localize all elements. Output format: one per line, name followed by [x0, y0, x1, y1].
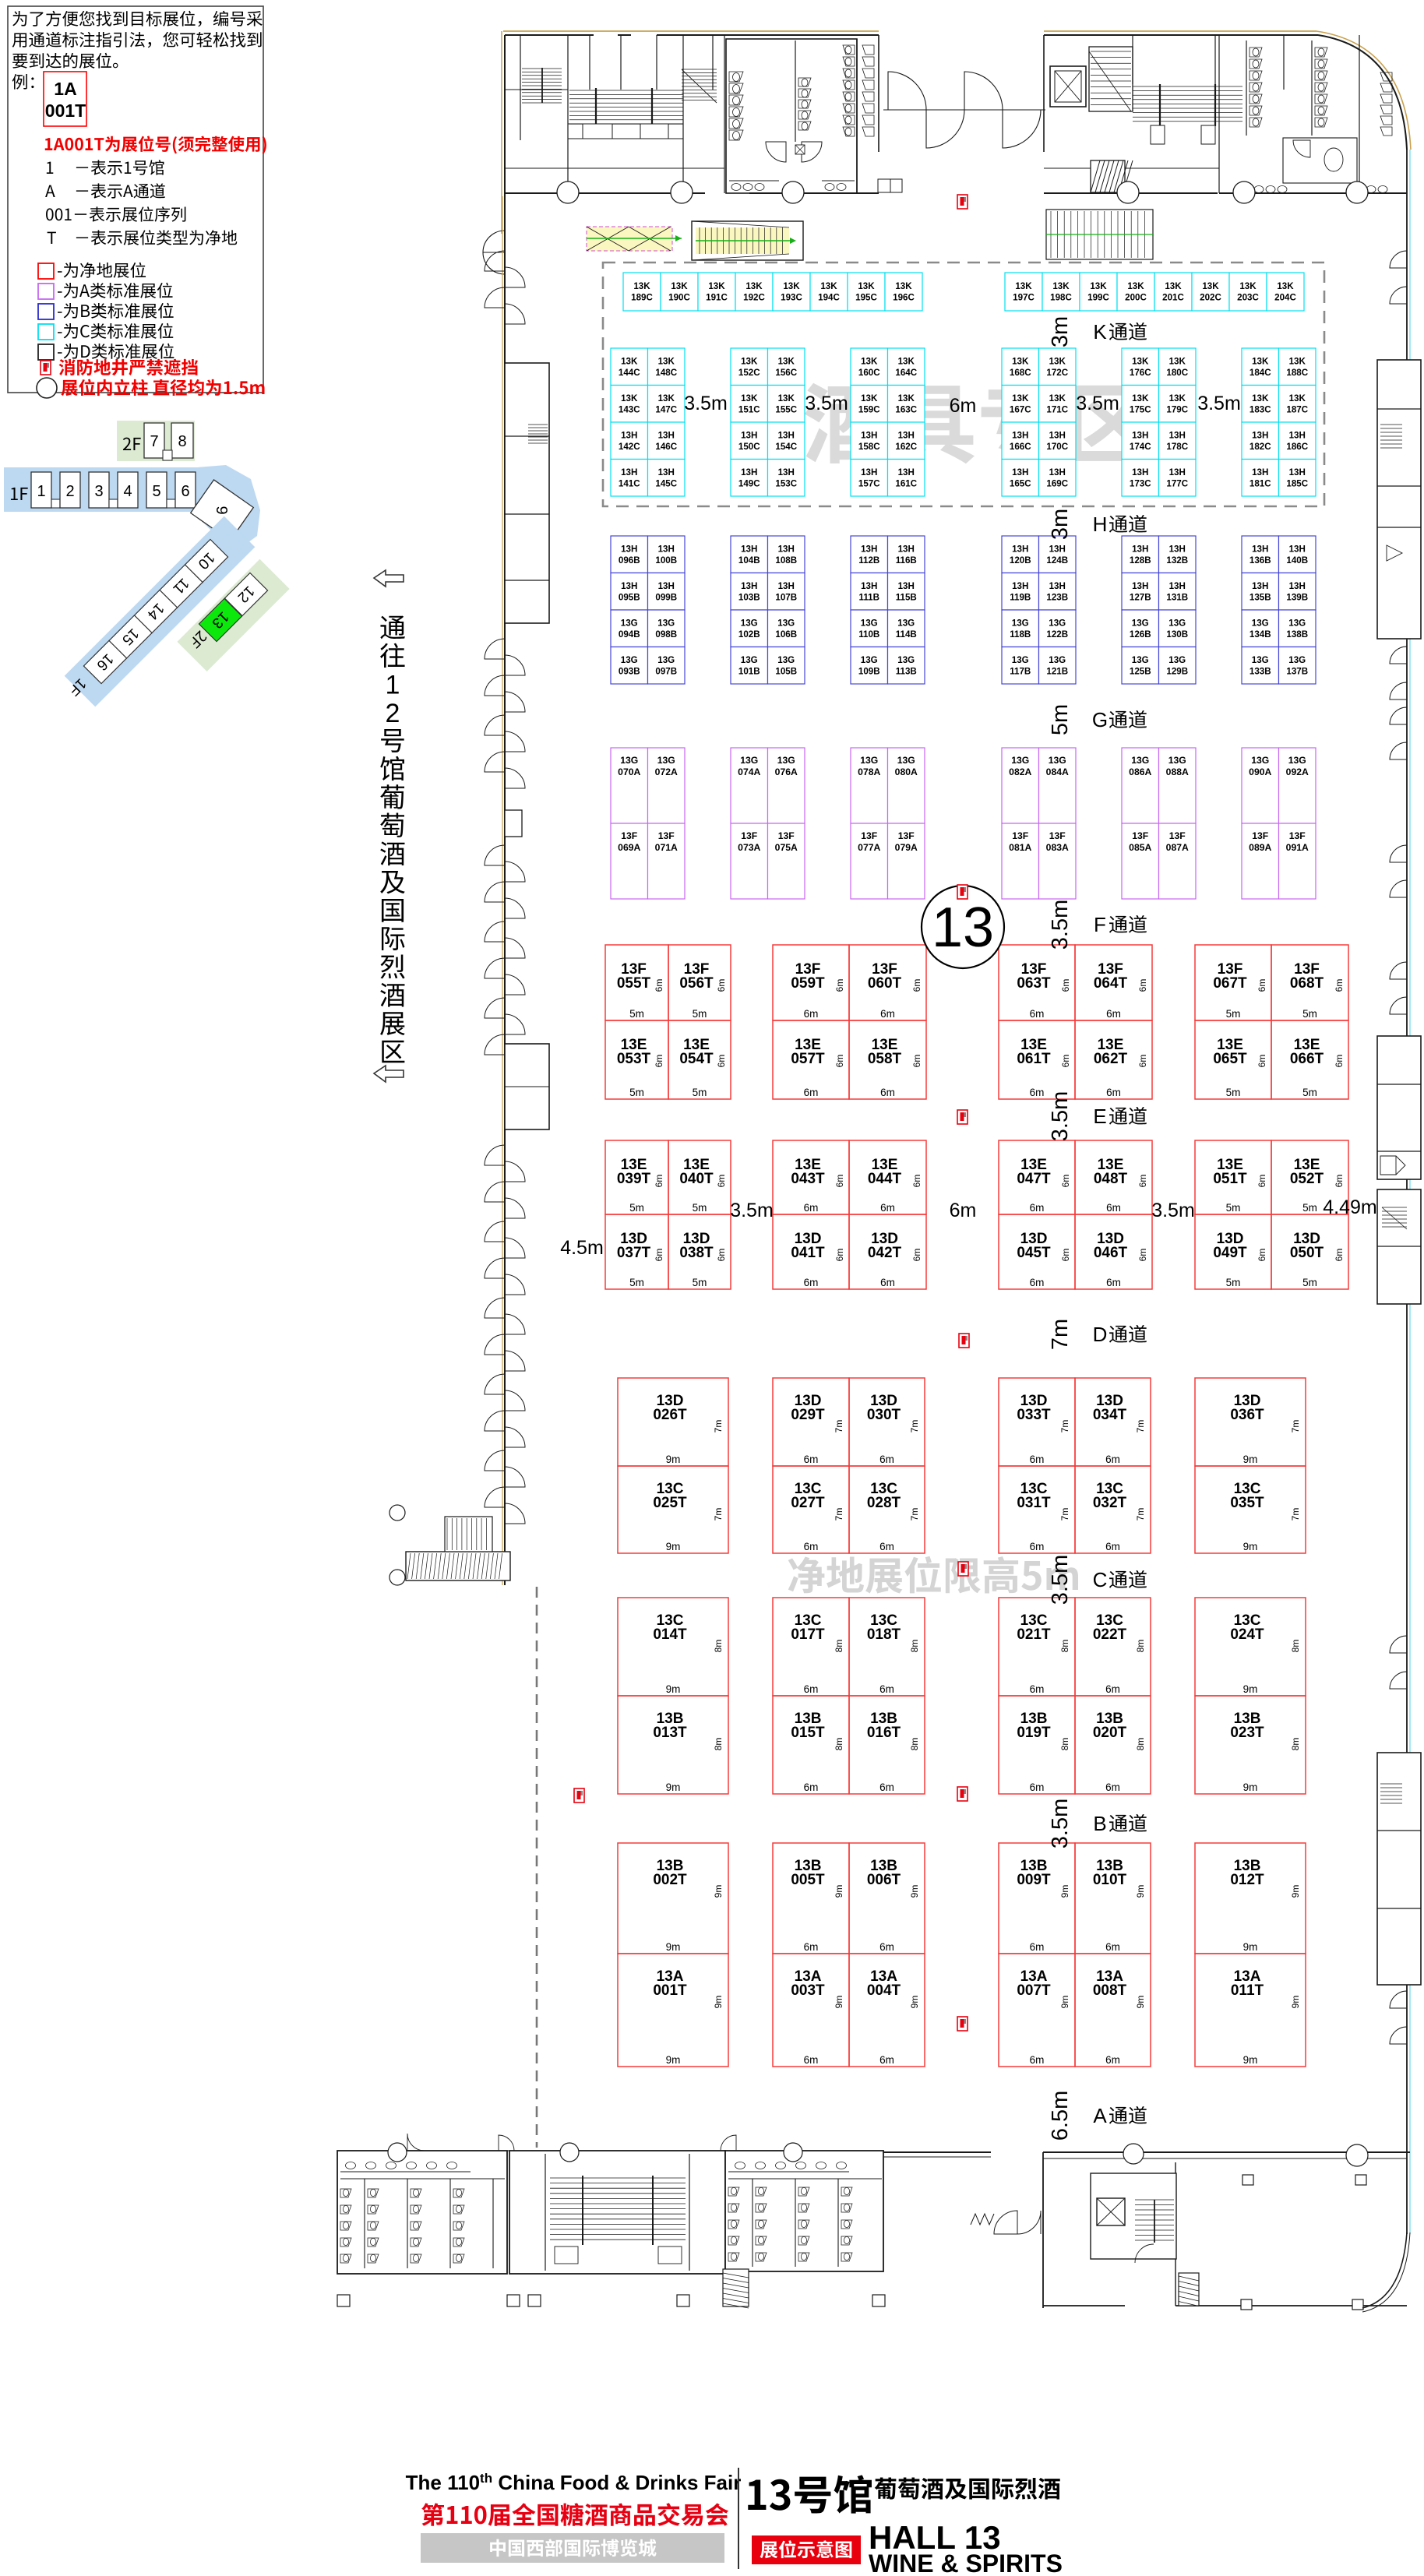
svg-text:13G: 13G	[897, 755, 915, 766]
svg-text:13K: 13K	[621, 356, 638, 366]
svg-text:13H: 13H	[1252, 581, 1268, 591]
svg-text:5m: 5m	[1226, 1202, 1241, 1214]
svg-text:137B: 137B	[1286, 666, 1308, 676]
svg-text:7: 7	[150, 433, 158, 450]
svg-text:192C: 192C	[743, 293, 765, 303]
svg-text:6m: 6m	[804, 1683, 819, 1695]
svg-text:099B: 099B	[655, 592, 677, 602]
svg-text:13H: 13H	[778, 544, 795, 554]
svg-text:5m: 5m	[693, 1087, 707, 1098]
svg-text:6m: 6m	[1257, 1175, 1267, 1188]
svg-text:066T: 066T	[1290, 1051, 1324, 1067]
svg-text:4.5m: 4.5m	[560, 1237, 604, 1259]
svg-text:13H: 13H	[1289, 544, 1306, 554]
svg-text:002T: 002T	[653, 1872, 687, 1888]
svg-text:13G: 13G	[861, 655, 878, 665]
svg-text:024T: 024T	[1230, 1626, 1264, 1643]
svg-text:191C: 191C	[706, 293, 728, 303]
svg-text:9m: 9m	[1243, 1454, 1258, 1465]
svg-text:13H: 13H	[861, 430, 877, 440]
svg-text:13H: 13H	[898, 430, 915, 440]
svg-text:13F: 13F	[1132, 830, 1148, 841]
svg-text:9m: 9m	[666, 1941, 681, 1953]
svg-text:009T: 009T	[1017, 1872, 1051, 1888]
svg-text:13H: 13H	[1289, 467, 1306, 477]
svg-text:13G: 13G	[657, 655, 675, 665]
svg-text:5m: 5m	[693, 1277, 707, 1288]
svg-text:6m: 6m	[950, 395, 977, 417]
svg-text:13H: 13H	[1012, 430, 1028, 440]
svg-text:13K: 13K	[820, 281, 837, 291]
svg-text:9m: 9m	[666, 2054, 681, 2066]
svg-text:6m: 6m	[1334, 979, 1345, 992]
svg-text:13H: 13H	[1132, 544, 1148, 554]
svg-text:042T: 042T	[868, 1245, 902, 1261]
svg-text:13H: 13H	[1012, 467, 1028, 477]
svg-text:027T: 027T	[791, 1495, 825, 1511]
svg-text:036T: 036T	[1230, 1407, 1264, 1423]
svg-text:196C: 196C	[893, 293, 915, 303]
svg-text:126B: 126B	[1130, 629, 1151, 640]
svg-text:13K: 13K	[708, 281, 725, 291]
svg-text:6: 6	[181, 483, 189, 500]
svg-text:13H: 13H	[1132, 581, 1148, 591]
svg-text:5: 5	[152, 483, 160, 500]
svg-text:031T: 031T	[1017, 1495, 1051, 1511]
svg-text:008T: 008T	[1093, 1982, 1127, 1999]
svg-text:023T: 023T	[1230, 1725, 1264, 1741]
svg-text:148C: 148C	[655, 368, 677, 378]
svg-text:13H: 13H	[898, 581, 915, 591]
svg-text:5m: 5m	[1302, 1202, 1317, 1214]
svg-text:7m: 7m	[834, 1420, 844, 1433]
svg-text:8m: 8m	[909, 1738, 920, 1751]
svg-text:035T: 035T	[1230, 1495, 1264, 1511]
svg-text:141C: 141C	[619, 478, 640, 488]
svg-text:084A: 084A	[1046, 766, 1069, 777]
svg-text:6m: 6m	[1334, 1175, 1345, 1188]
svg-text:8m: 8m	[1059, 1640, 1070, 1653]
svg-text:6m: 6m	[834, 1055, 845, 1068]
svg-text:13K: 13K	[1127, 281, 1144, 291]
svg-text:132B: 132B	[1166, 555, 1188, 566]
svg-text:9m: 9m	[713, 1885, 724, 1898]
svg-text:060T: 060T	[868, 975, 902, 992]
svg-text:136B: 136B	[1250, 555, 1271, 566]
svg-text:085A: 085A	[1129, 842, 1151, 853]
svg-text:C: C	[1093, 1568, 1108, 1591]
svg-text:6m: 6m	[879, 1454, 894, 1465]
svg-text:198C: 198C	[1050, 293, 1072, 303]
svg-text:13H: 13H	[1049, 467, 1066, 477]
svg-text:8m: 8m	[834, 1738, 844, 1751]
svg-text:13G: 13G	[897, 618, 915, 628]
svg-text:4.49m: 4.49m	[1323, 1196, 1376, 1218]
svg-text:13H: 13H	[1012, 544, 1028, 554]
svg-text:13K: 13K	[741, 356, 758, 366]
svg-text:203C: 203C	[1237, 293, 1259, 303]
svg-text:204C: 204C	[1274, 293, 1296, 303]
svg-text:13F: 13F	[778, 830, 795, 841]
svg-text:094B: 094B	[619, 629, 640, 640]
svg-text:6m: 6m	[911, 979, 922, 992]
svg-text:6m: 6m	[654, 979, 664, 992]
svg-text:6m: 6m	[1105, 1941, 1120, 1953]
svg-text:13H: 13H	[741, 581, 757, 591]
svg-text:135B: 135B	[1250, 592, 1271, 602]
svg-text:029T: 029T	[791, 1407, 825, 1423]
svg-text:057T: 057T	[791, 1051, 825, 1067]
svg-text:6m: 6m	[1106, 1202, 1121, 1214]
svg-text:3m: 3m	[1048, 316, 1073, 347]
svg-text:13K: 13K	[898, 356, 915, 366]
svg-text:13K: 13K	[861, 356, 878, 366]
svg-text:13H: 13H	[1012, 581, 1028, 591]
svg-text:040T: 040T	[679, 1171, 714, 1187]
svg-text:9m: 9m	[666, 1683, 681, 1695]
svg-text:13H: 13H	[658, 544, 675, 554]
svg-text:13K: 13K	[1012, 356, 1029, 366]
svg-text:13H: 13H	[861, 467, 877, 477]
svg-text:9m: 9m	[1135, 1996, 1146, 2009]
svg-text:178C: 178C	[1166, 442, 1188, 452]
svg-text:7m: 7m	[1290, 1420, 1301, 1433]
svg-text:13F: 13F	[741, 830, 757, 841]
svg-text:9m: 9m	[834, 1885, 844, 1898]
svg-text:The 110th China Food & Drinks: The 110th China Food & Drinks Fair	[406, 2471, 742, 2495]
svg-text:9m: 9m	[1290, 1996, 1301, 2009]
svg-text:6m: 6m	[879, 1781, 894, 1793]
svg-text:13G: 13G	[777, 618, 795, 628]
svg-text:3.5m: 3.5m	[1048, 900, 1073, 950]
svg-text:013T: 013T	[653, 1725, 687, 1741]
svg-text:5m: 5m	[1302, 1008, 1317, 1020]
svg-text:7m: 7m	[1135, 1508, 1146, 1521]
svg-text:090A: 090A	[1249, 766, 1271, 777]
svg-text:13K: 13K	[741, 393, 758, 403]
svg-text:6m: 6m	[879, 2054, 894, 2066]
svg-text:13H: 13H	[658, 430, 675, 440]
svg-text:13H: 13H	[621, 467, 637, 477]
svg-text:041T: 041T	[791, 1245, 825, 1261]
svg-text:13K: 13K	[633, 281, 650, 291]
svg-text:086A: 086A	[1129, 766, 1151, 777]
svg-text:13G: 13G	[741, 655, 758, 665]
svg-text:127B: 127B	[1130, 592, 1151, 602]
svg-text:13G: 13G	[741, 618, 758, 628]
svg-text:098B: 098B	[655, 629, 677, 640]
svg-text:6m: 6m	[1137, 1249, 1148, 1262]
svg-text:13H: 13H	[778, 430, 795, 440]
svg-text:13H: 13H	[778, 581, 795, 591]
svg-text:012T: 012T	[1230, 1872, 1264, 1888]
svg-text:6m: 6m	[654, 1175, 664, 1188]
svg-text:104B: 104B	[738, 555, 760, 566]
svg-text:13G: 13G	[1252, 618, 1269, 628]
svg-text:H: H	[1093, 513, 1108, 536]
svg-text:095B: 095B	[619, 592, 640, 602]
svg-text:13K: 13K	[898, 393, 915, 403]
svg-text:142C: 142C	[619, 442, 640, 452]
svg-text:13K: 13K	[658, 393, 675, 403]
svg-text:3: 3	[94, 483, 103, 500]
svg-text:13H: 13H	[861, 544, 877, 554]
svg-text:9m: 9m	[1059, 1885, 1070, 1898]
svg-text:6m: 6m	[1105, 2054, 1120, 2066]
svg-text:9m: 9m	[1059, 1996, 1070, 2009]
svg-text:183C: 183C	[1250, 404, 1271, 414]
svg-text:13G: 13G	[740, 755, 758, 766]
svg-text:3.5m: 3.5m	[684, 393, 728, 414]
svg-text:123B: 123B	[1046, 592, 1068, 602]
svg-text:13F: 13F	[1012, 830, 1028, 841]
svg-text:G: G	[1092, 708, 1108, 731]
svg-text:199C: 199C	[1087, 293, 1109, 303]
svg-text:6m: 6m	[1030, 1454, 1045, 1465]
svg-text:014T: 014T	[653, 1626, 687, 1643]
svg-text:194C: 194C	[818, 293, 840, 303]
svg-text:160C: 160C	[858, 368, 880, 378]
svg-text:010T: 010T	[1093, 1872, 1127, 1888]
svg-text:8m: 8m	[909, 1640, 920, 1653]
svg-text:025T: 025T	[653, 1495, 687, 1511]
svg-text:184C: 184C	[1250, 368, 1271, 378]
svg-text:091A: 091A	[1286, 842, 1309, 853]
svg-text:13G: 13G	[1132, 655, 1149, 665]
svg-text:13K: 13K	[1202, 281, 1219, 291]
svg-text:186C: 186C	[1286, 442, 1308, 452]
svg-text:019T: 019T	[1017, 1725, 1051, 1741]
svg-text:011T: 011T	[1231, 1982, 1264, 1999]
svg-text:182C: 182C	[1250, 442, 1271, 452]
svg-text:146C: 146C	[655, 442, 677, 452]
svg-text:13G: 13G	[1131, 755, 1149, 766]
svg-text:6m: 6m	[1030, 1087, 1045, 1098]
svg-text:6m: 6m	[834, 1249, 845, 1262]
svg-text:067T: 067T	[1213, 975, 1247, 992]
svg-text:116B: 116B	[896, 555, 917, 566]
svg-text:125B: 125B	[1130, 666, 1151, 676]
svg-text:13H: 13H	[741, 467, 757, 477]
svg-text:187C: 187C	[1286, 404, 1308, 414]
svg-text:13K: 13K	[783, 281, 800, 291]
svg-text:13G: 13G	[657, 755, 675, 766]
svg-text:13F: 13F	[1289, 830, 1306, 841]
svg-text:129B: 129B	[1166, 666, 1188, 676]
svg-text:13K: 13K	[1012, 393, 1029, 403]
svg-text:177C: 177C	[1166, 478, 1188, 488]
svg-text:6m: 6m	[1137, 979, 1148, 992]
svg-text:133B: 133B	[1250, 666, 1271, 676]
svg-text:6m: 6m	[1030, 1202, 1045, 1214]
svg-text:9m: 9m	[1243, 2054, 1258, 2066]
svg-text:169C: 169C	[1046, 478, 1068, 488]
svg-text:131B: 131B	[1166, 592, 1188, 602]
svg-text:149C: 149C	[738, 478, 760, 488]
svg-text:167C: 167C	[1010, 404, 1031, 414]
svg-text:111B: 111B	[859, 592, 879, 602]
svg-text:9m: 9m	[1135, 1885, 1146, 1898]
svg-text:8m: 8m	[713, 1738, 724, 1751]
svg-text:13K: 13K	[1289, 393, 1306, 403]
svg-text:9m: 9m	[1243, 1541, 1258, 1552]
svg-text:13G: 13G	[777, 655, 795, 665]
svg-text:030T: 030T	[867, 1407, 901, 1423]
svg-text:6m: 6m	[804, 1087, 819, 1098]
svg-text:072A: 072A	[655, 766, 678, 777]
svg-text:016T: 016T	[867, 1725, 901, 1741]
svg-text:201C: 201C	[1162, 293, 1184, 303]
svg-text:9m: 9m	[666, 1454, 681, 1465]
svg-text:13H: 13H	[1252, 544, 1268, 554]
svg-text:147C: 147C	[655, 404, 677, 414]
svg-text:6m: 6m	[1257, 1055, 1267, 1068]
svg-text:044T: 044T	[868, 1171, 902, 1187]
svg-text:021T: 021T	[1017, 1626, 1051, 1643]
svg-text:13H: 13H	[1289, 581, 1306, 591]
svg-text:097B: 097B	[655, 666, 677, 676]
svg-text:089A: 089A	[1249, 842, 1271, 853]
svg-text:176C: 176C	[1130, 368, 1151, 378]
svg-text:A: A	[1093, 2104, 1107, 2127]
svg-text:7m: 7m	[1290, 1508, 1301, 1521]
svg-text:017T: 017T	[791, 1626, 825, 1643]
svg-text:13K: 13K	[778, 393, 795, 403]
svg-text:022T: 022T	[1093, 1626, 1127, 1643]
svg-text:096B: 096B	[619, 555, 640, 566]
svg-text:13H: 13H	[1169, 467, 1186, 477]
svg-text:071A: 071A	[655, 842, 678, 853]
svg-text:5m: 5m	[1226, 1087, 1241, 1098]
svg-text:13F: 13F	[1169, 830, 1186, 841]
svg-text:13: 13	[932, 897, 994, 959]
svg-text:061T: 061T	[1017, 1051, 1051, 1067]
svg-text:015T: 015T	[791, 1725, 825, 1741]
svg-text:075A: 075A	[775, 842, 798, 853]
svg-text:13F: 13F	[658, 830, 675, 841]
svg-text:13K: 13K	[1049, 356, 1066, 366]
svg-text:13K: 13K	[1049, 393, 1066, 403]
svg-text:13G: 13G	[777, 755, 795, 766]
svg-text:5m: 5m	[629, 1008, 644, 1020]
svg-text:032T: 032T	[1093, 1495, 1127, 1511]
svg-text:181C: 181C	[1250, 478, 1271, 488]
svg-text:088A: 088A	[1166, 766, 1189, 777]
svg-text:13G: 13G	[1168, 655, 1186, 665]
svg-text:078A: 078A	[858, 766, 880, 777]
svg-text:156C: 156C	[775, 368, 797, 378]
svg-text:168C: 168C	[1010, 368, 1031, 378]
svg-text:037T: 037T	[617, 1245, 651, 1261]
svg-text:13K: 13K	[1169, 356, 1186, 366]
svg-text:7m: 7m	[909, 1420, 920, 1433]
svg-text:13G: 13G	[621, 655, 638, 665]
svg-text:157C: 157C	[858, 478, 880, 488]
svg-text:13K: 13K	[1252, 393, 1269, 403]
svg-text:13H: 13H	[1132, 430, 1148, 440]
svg-text:13K: 13K	[1015, 281, 1032, 291]
svg-text:1: 1	[386, 671, 400, 700]
svg-text:13K: 13K	[1090, 281, 1107, 291]
svg-text:001T: 001T	[45, 100, 86, 121]
svg-text:13G: 13G	[1049, 655, 1066, 665]
svg-text:046T: 046T	[1094, 1245, 1128, 1261]
svg-text:13H: 13H	[1049, 581, 1066, 591]
svg-text:6m: 6m	[804, 1541, 819, 1552]
svg-text:13H: 13H	[658, 581, 675, 591]
svg-text:9m: 9m	[713, 1996, 724, 2009]
svg-text:13H: 13H	[1252, 467, 1268, 477]
svg-text:018T: 018T	[867, 1626, 901, 1643]
svg-text:070A: 070A	[618, 766, 640, 777]
svg-text:13K: 13K	[1052, 281, 1070, 291]
svg-text:6m: 6m	[1030, 1008, 1045, 1020]
svg-text:051T: 051T	[1213, 1171, 1247, 1187]
svg-text:101B: 101B	[738, 666, 760, 676]
svg-text:6m: 6m	[880, 1202, 895, 1214]
svg-text:9m: 9m	[666, 1541, 681, 1552]
svg-text:6m: 6m	[716, 979, 727, 992]
svg-text:13G: 13G	[1288, 618, 1306, 628]
svg-text:105B: 105B	[775, 666, 797, 676]
svg-text:045T: 045T	[1017, 1245, 1051, 1261]
svg-text:2: 2	[65, 483, 74, 500]
svg-text:005T: 005T	[791, 1872, 825, 1888]
svg-text:13G: 13G	[657, 618, 675, 628]
svg-text:13G: 13G	[860, 755, 878, 766]
svg-text:6m: 6m	[654, 1249, 664, 1262]
svg-text:145C: 145C	[655, 478, 677, 488]
svg-text:13G: 13G	[1168, 755, 1186, 766]
svg-text:13H: 13H	[778, 467, 795, 477]
svg-text:172C: 172C	[1046, 368, 1068, 378]
svg-text:054T: 054T	[679, 1051, 714, 1067]
svg-text:8m: 8m	[1290, 1640, 1301, 1653]
svg-text:161C: 161C	[895, 478, 917, 488]
svg-text:185C: 185C	[1286, 478, 1308, 488]
svg-text:K: K	[1093, 320, 1107, 344]
svg-text:13G: 13G	[1011, 755, 1029, 766]
svg-text:13K: 13K	[671, 281, 688, 291]
svg-text:6m: 6m	[1105, 1541, 1120, 1552]
svg-text:081A: 081A	[1009, 842, 1031, 853]
svg-text:3.5m: 3.5m	[1048, 1799, 1073, 1848]
svg-text:13H: 13H	[861, 581, 877, 591]
svg-text:6m: 6m	[804, 1454, 819, 1465]
svg-text:13F: 13F	[1049, 830, 1066, 841]
svg-text:026T: 026T	[653, 1407, 687, 1423]
svg-text:109B: 109B	[858, 666, 880, 676]
svg-text:8m: 8m	[713, 1640, 724, 1653]
svg-text:13H: 13H	[621, 544, 637, 554]
svg-text:093B: 093B	[619, 666, 640, 676]
svg-text:7m: 7m	[713, 1420, 724, 1433]
svg-text:6m: 6m	[716, 1175, 727, 1188]
svg-text:6m: 6m	[654, 1055, 664, 1068]
svg-text:6m: 6m	[1060, 1175, 1071, 1188]
svg-text:5m: 5m	[1048, 704, 1073, 735]
svg-text:074A: 074A	[738, 766, 760, 777]
svg-text:6m: 6m	[716, 1055, 727, 1068]
svg-text:8: 8	[178, 433, 186, 450]
svg-text:7m: 7m	[1135, 1420, 1146, 1433]
svg-text:13F: 13F	[861, 830, 877, 841]
svg-text:8m: 8m	[1135, 1738, 1146, 1751]
svg-text:107B: 107B	[775, 592, 797, 602]
svg-text:1: 1	[37, 483, 45, 500]
svg-text:13H: 13H	[658, 467, 675, 477]
svg-text:9m: 9m	[909, 1996, 920, 2009]
